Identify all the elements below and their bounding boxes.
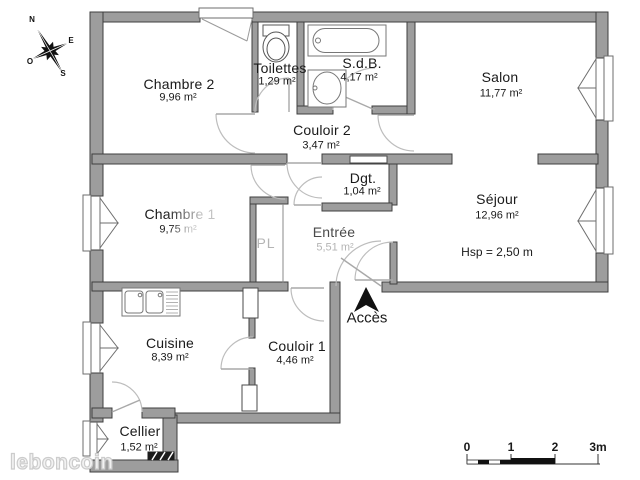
ceiling-height-note: Hsp = 2,50 m <box>461 246 533 258</box>
room-area-sejour: 12,96 m² <box>475 211 518 222</box>
room-label-salon: Salon <box>482 70 519 84</box>
room-area-dgt: 1,04 m² <box>343 187 380 198</box>
room-area-chambre-2: 9,96 m² <box>159 93 196 104</box>
compass-east-label: E <box>68 37 73 45</box>
room-area-sdb: 4,17 m² <box>340 73 377 84</box>
toilet-icon <box>263 25 289 62</box>
room-area-chambre-1: 9,75 m² <box>159 225 196 236</box>
compass-west-label: O <box>27 58 33 66</box>
room-label-entree: Entrée <box>313 225 355 239</box>
scale-tick-0: 0 <box>464 441 471 453</box>
room-area-entree: 5,51 m² <box>316 243 353 254</box>
floorplan-drawing <box>0 0 640 480</box>
scale-bar <box>467 454 600 464</box>
compass-north-label: N <box>29 16 35 24</box>
room-label-cuisine: Cuisine <box>146 336 194 350</box>
compass-rose-icon <box>34 30 67 72</box>
kitchen-sink-icon <box>122 288 180 316</box>
floorplan: Chambre 2 9,96 m² Toilettes 1,29 m² S.d.… <box>0 0 640 480</box>
access-label: Accès <box>347 311 388 326</box>
room-label-sejour: Séjour <box>476 192 518 206</box>
room-label-sdb: S.d.B. <box>342 56 381 70</box>
room-label-toilettes: Toilettes <box>253 61 306 75</box>
room-area-couloir-2: 3,47 m² <box>302 141 339 152</box>
room-area-cellier: 1,52 m² <box>120 443 157 454</box>
room-label-cellier: Cellier <box>119 424 160 438</box>
room-area-cuisine: 8,39 m² <box>151 353 188 364</box>
room-label-chambre-1: Chambre 1 <box>144 207 215 221</box>
compass-south-label: S <box>60 70 65 78</box>
room-area-couloir-1: 4,46 m² <box>276 356 313 367</box>
room-area-salon: 11,77 m² <box>480 89 523 100</box>
scale-tick-2: 2 <box>552 441 559 453</box>
room-area-toilettes: 1,29 m² <box>258 77 295 88</box>
watermark-logo: leboncoin <box>10 451 114 475</box>
room-label-couloir-2: Couloir 2 <box>293 123 351 137</box>
access-arrow-icon <box>354 287 379 312</box>
closet-label: PL <box>256 236 275 250</box>
room-label-chambre-2: Chambre 2 <box>143 77 214 91</box>
room-label-couloir-1: Couloir 1 <box>268 339 326 353</box>
scale-tick-1: 1 <box>508 441 515 453</box>
room-label-dgt: Dgt. <box>350 171 376 185</box>
bathtub-icon <box>308 25 386 56</box>
scale-tick-3: 3m <box>589 441 606 453</box>
